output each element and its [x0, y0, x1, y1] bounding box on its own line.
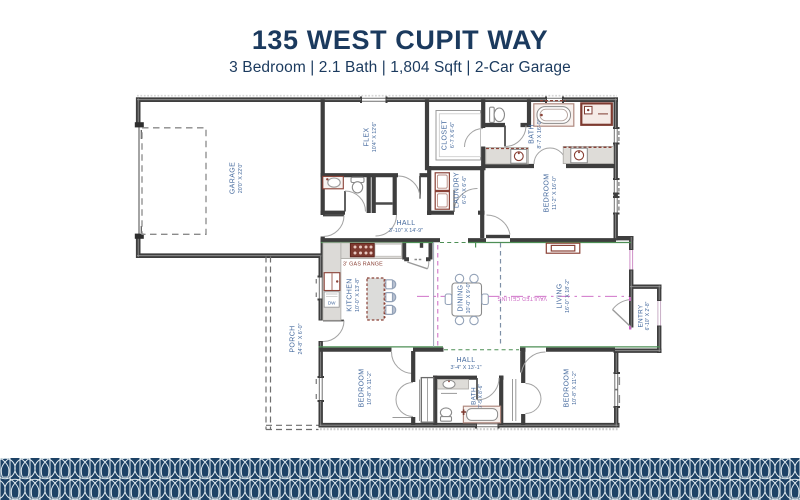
svg-text:DW: DW	[328, 301, 336, 306]
svg-text:135 WEST CUPIT WAY: 135 WEST CUPIT WAY	[252, 25, 548, 55]
svg-text:PORCH: PORCH	[290, 325, 297, 352]
svg-text:HALL: HALL	[396, 220, 415, 227]
svg-text:BATH: BATH	[471, 387, 478, 405]
svg-text:BEDROOM: BEDROOM	[564, 369, 571, 408]
svg-text:3'-10" X 14'-9": 3'-10" X 14'-9"	[389, 228, 423, 234]
svg-text:BATH: BATH	[529, 124, 536, 144]
svg-text:CLOSET: CLOSET	[442, 119, 449, 150]
svg-text:BEDROOM: BEDROOM	[359, 369, 366, 408]
svg-text:6'-10" X 2'-8": 6'-10" X 2'-8"	[645, 301, 651, 330]
svg-text:10'-0" X 9'-0": 10'-0" X 9'-0"	[466, 282, 472, 313]
svg-text:3'-4" X 13'-1": 3'-4" X 13'-1"	[450, 365, 481, 371]
svg-text:ENTRY: ENTRY	[638, 304, 645, 327]
svg-text:10'-0" X 13'-8": 10'-0" X 13'-8"	[355, 278, 361, 312]
svg-text:10'4" X 12'6": 10'4" X 12'6"	[372, 122, 378, 153]
svg-text:10'-8" X 11'-2": 10'-8" X 11'-2"	[572, 371, 578, 405]
svg-text:GARAGE: GARAGE	[230, 162, 237, 194]
svg-text:LIVING: LIVING	[557, 283, 564, 308]
svg-text:8'-7 X 16'-0": 8'-7 X 16'-0"	[537, 119, 543, 148]
svg-text:16'-0" X 18'-2": 16'-0" X 18'-2"	[565, 279, 571, 313]
svg-text:7'-5 X 8'-6": 7'-5 X 8'-6"	[478, 384, 484, 408]
svg-text:6'-7 X 6'-6": 6'-7 X 6'-6"	[450, 122, 456, 148]
svg-text:24'-8" X 6'-0": 24'-8" X 6'-0"	[298, 323, 304, 354]
svg-text:FLEX: FLEX	[364, 127, 371, 146]
svg-text:VAULTED CEILING: VAULTED CEILING	[497, 295, 547, 301]
svg-text:10'-8" X 11'-2": 10'-8" X 11'-2"	[367, 371, 373, 405]
svg-text:DINING: DINING	[458, 285, 465, 312]
svg-text:3 Bedroom | 2.1 Bath | 1,804 S: 3 Bedroom | 2.1 Bath | 1,804 Sqft | 2-Ca…	[229, 59, 571, 76]
svg-text:LAUNDRY: LAUNDRY	[454, 172, 461, 208]
svg-text:11'-2" X 16'-0": 11'-2" X 16'-0"	[552, 176, 558, 210]
svg-text:BEDROOM: BEDROOM	[544, 174, 551, 213]
svg-text:HALL: HALL	[456, 357, 475, 364]
svg-text:KITCHEN: KITCHEN	[347, 278, 354, 312]
svg-text:20'0" X 22'0": 20'0" X 22'0"	[238, 163, 244, 194]
svg-text:3' GAS RANGE: 3' GAS RANGE	[343, 261, 383, 267]
svg-text:6'-0" X 6'-6": 6'-0" X 6'-6"	[462, 176, 468, 204]
